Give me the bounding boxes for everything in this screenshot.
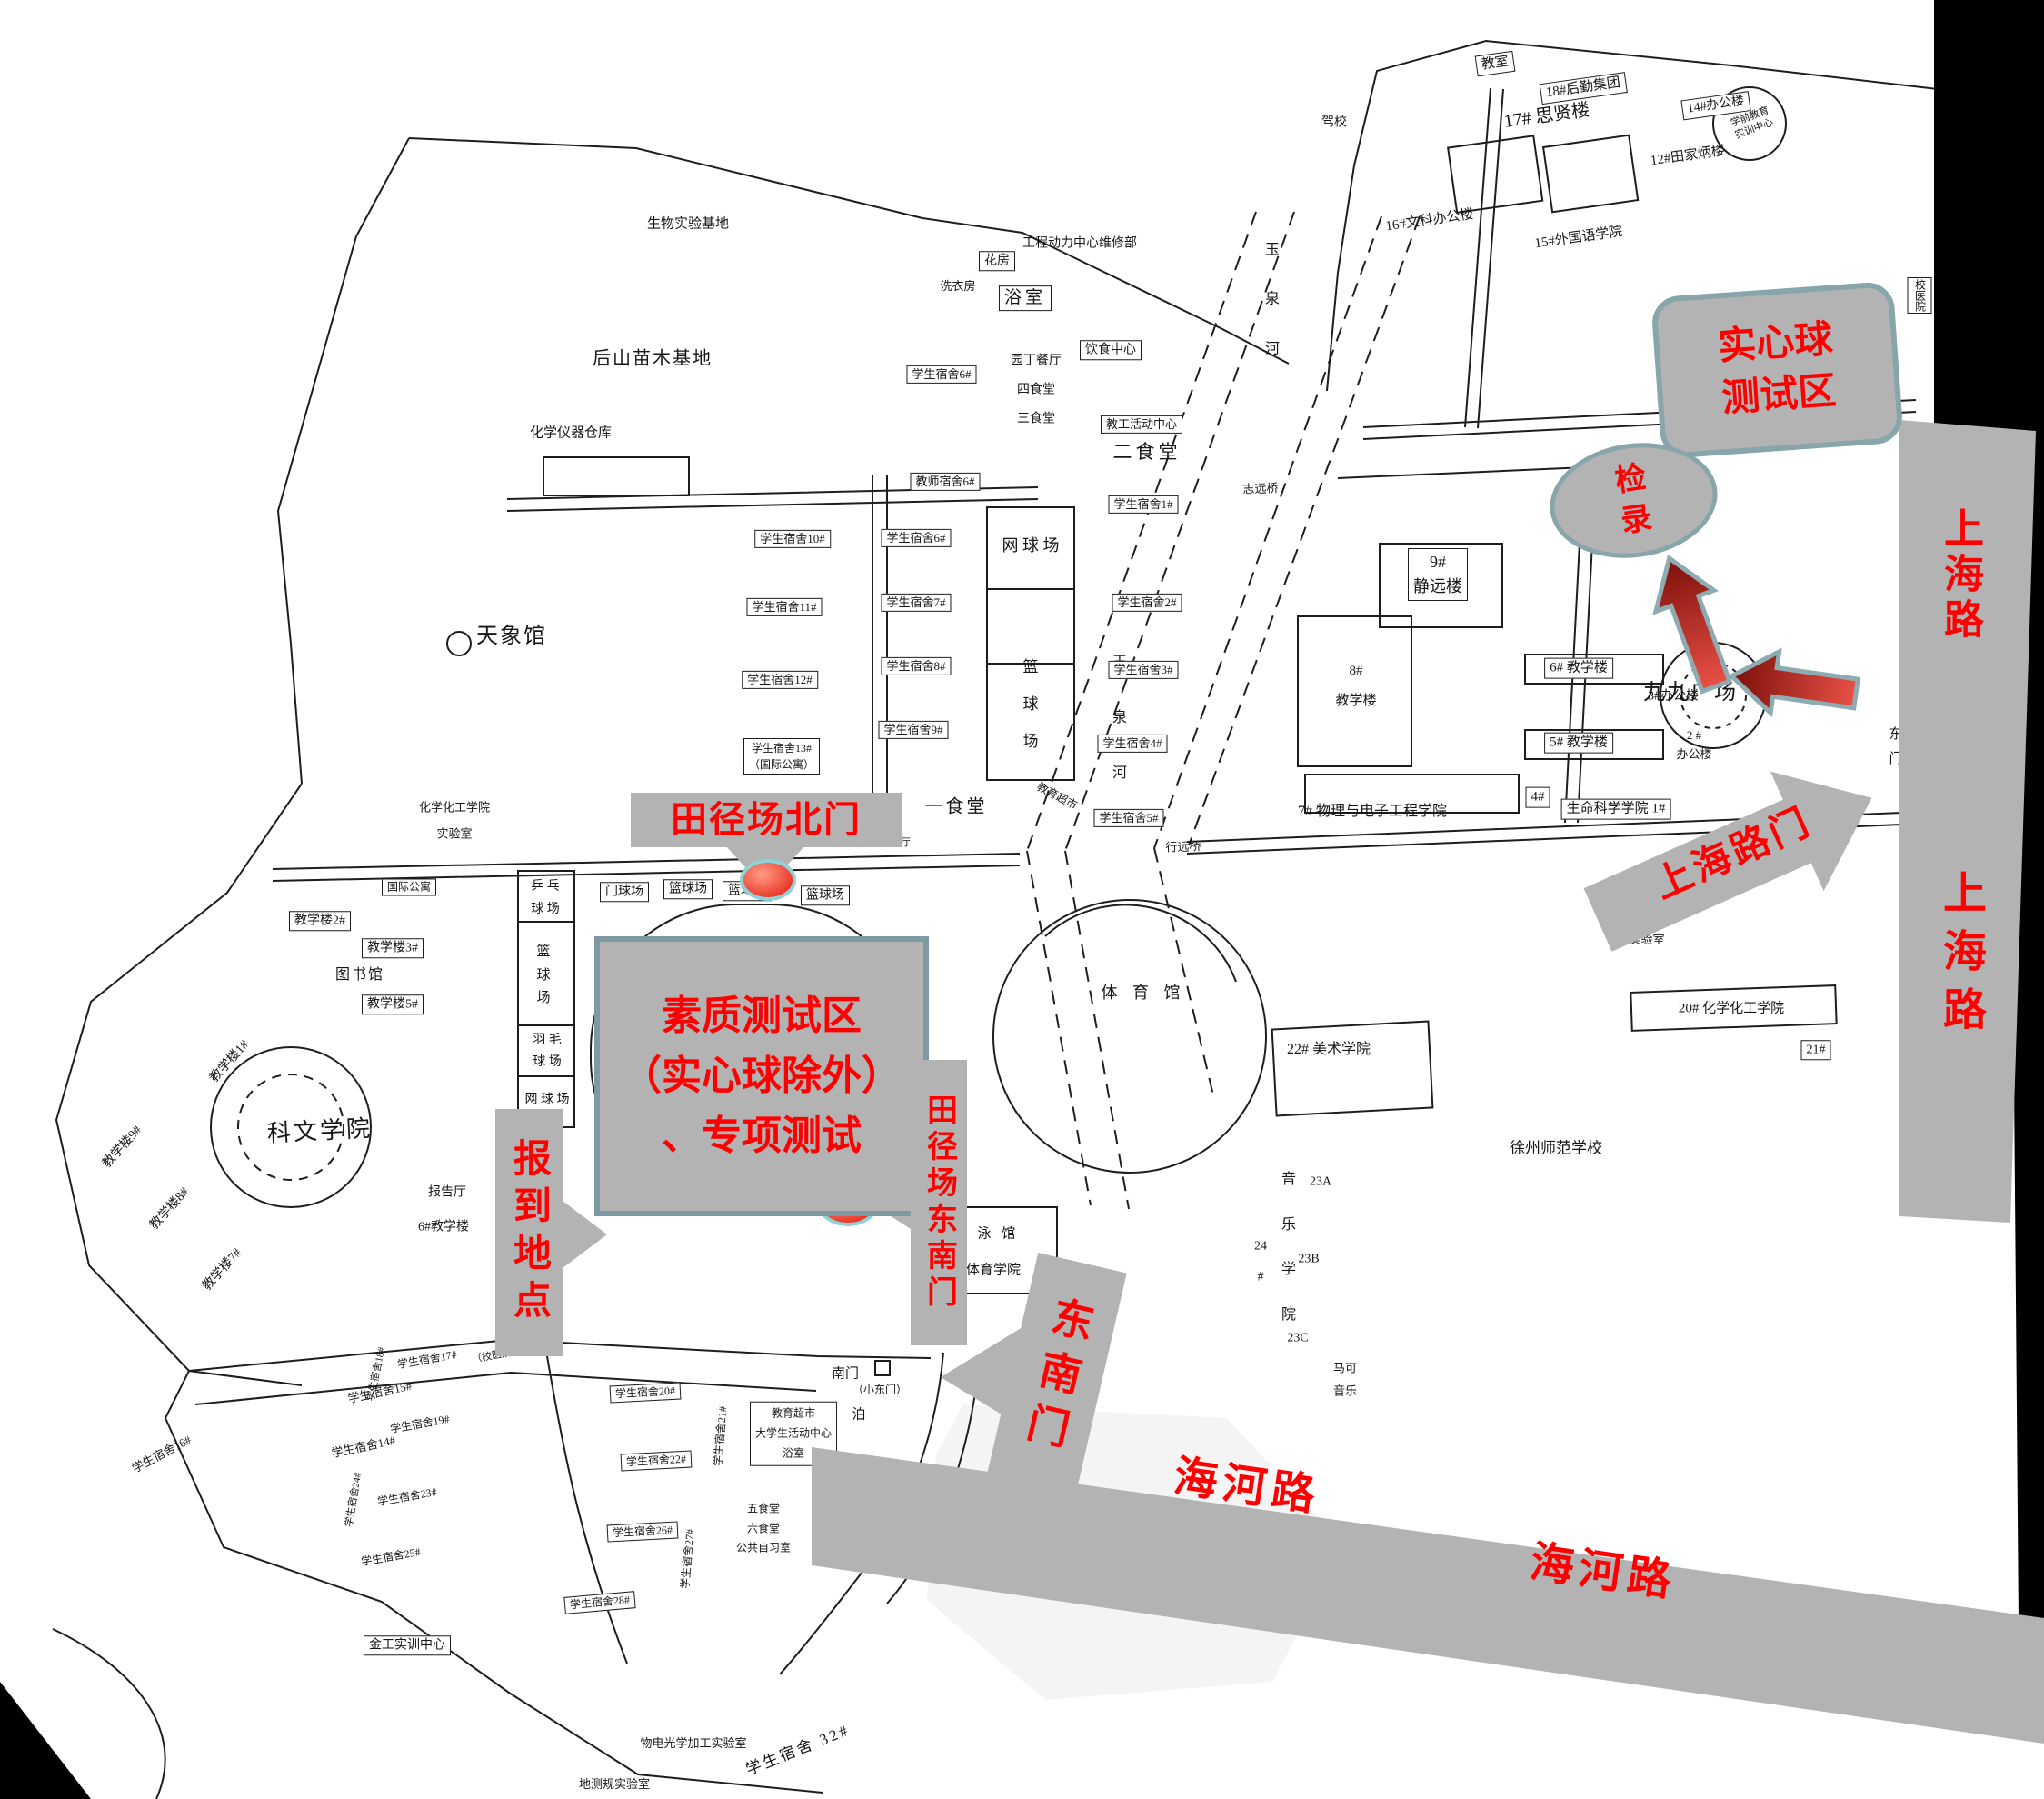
quality-test-zone-overlay: 素质测试区 （实心球除外） 、专项测试 (594, 936, 929, 1216)
annotation-graphics (0, 0, 2044, 1799)
route-arrow-left (1728, 645, 1860, 725)
check-in-label: 检 录 (1613, 458, 1655, 542)
route-arrow-up (1640, 547, 1745, 696)
shanghai-road-top-label: 上海路 (1930, 507, 1989, 644)
track-southeast-gate-label: 田径场东南门 (917, 1094, 962, 1312)
quality-test-zone-label: 素质测试区 （实心球除外） 、专项测试 (622, 986, 902, 1166)
registration-point-label: 报到地点 (502, 1138, 557, 1327)
solid-ball-test-zone-label: 实心球 测试区 (1717, 315, 1839, 425)
registration-point-banner: 报到地点 (495, 1109, 563, 1356)
track-southeast-gate-banner: 田径场东南门 (911, 1060, 967, 1345)
north-gate-dot (742, 861, 794, 899)
shanghai-road-text-bottom: 上海路 (1932, 859, 1987, 1054)
shanghai-road-text-top: 上海路 (1934, 498, 1985, 653)
haihe-road-band (812, 1447, 2044, 1744)
campus-map: 教室18#后勤集团驾校17# 思贤楼14#办公楼12#田家炳楼学前教育 实训中心… (0, 0, 2044, 1799)
solid-ball-test-zone-overlay: 实心球 测试区 (1650, 281, 1904, 459)
track-north-gate-label: 田径场北门 (671, 800, 862, 840)
shanghai-road-bottom-label: 上海路 (1928, 870, 1991, 1044)
track-north-gate-banner: 田径场北门 (631, 793, 902, 847)
